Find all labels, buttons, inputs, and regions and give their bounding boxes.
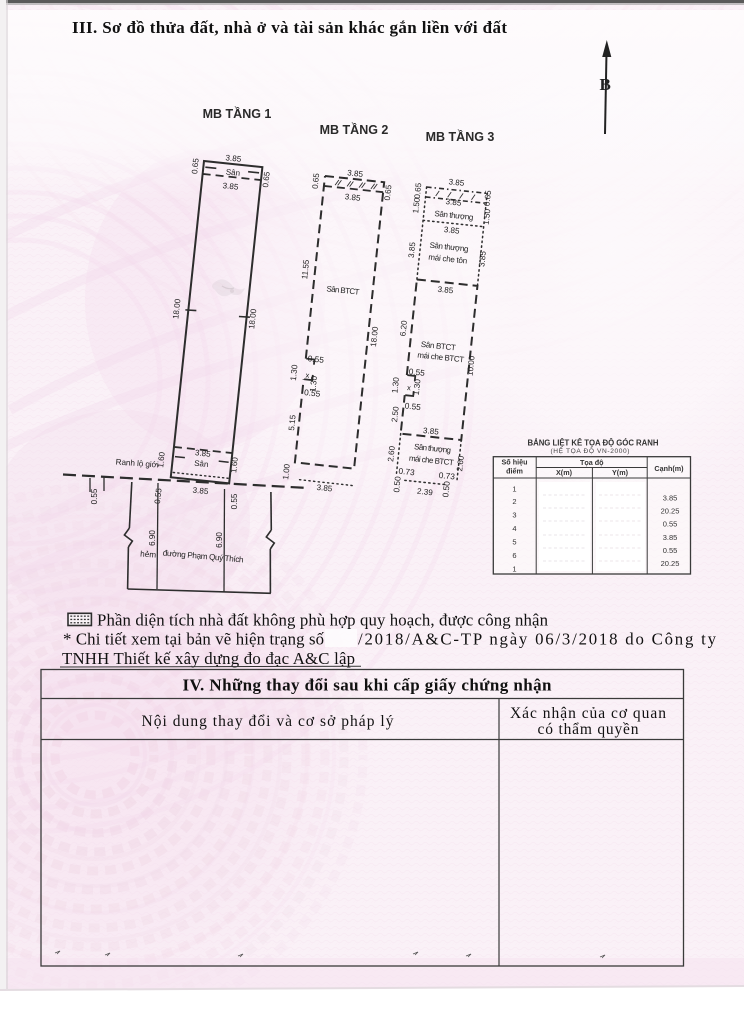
svg-text:III. Sơ đồ thửa đất, nhà ở và: III. Sơ đồ thửa đất, nhà ở và tài sản kh… (72, 18, 507, 37)
svg-text:1.00: 1.00 (281, 463, 292, 480)
svg-text:0.65: 0.65 (482, 189, 493, 206)
svg-text:1.50: 1.50 (411, 197, 422, 214)
svg-text:Phần diện tích nhà đất không p: Phần diện tích nhà đất không phù hợp quy… (97, 611, 549, 630)
svg-text:6.20: 6.20 (398, 320, 409, 337)
svg-text:20.25: 20.25 (661, 559, 680, 568)
svg-text:3.85: 3.85 (316, 483, 333, 494)
svg-text:3.85: 3.85 (407, 241, 418, 258)
svg-text:3.85: 3.85 (195, 448, 212, 459)
svg-text:3.85: 3.85 (448, 177, 465, 188)
svg-text:* Chi tiết xem tại bản vẽ hiện: * Chi tiết xem tại bản vẽ hiện trạng số (63, 630, 325, 649)
svg-text:MB TẦNG 1: MB TẦNG 1 (203, 106, 272, 121)
svg-text:3.85: 3.85 (192, 486, 209, 497)
svg-text:0.65: 0.65 (413, 182, 424, 199)
svg-text:Cạnh(m): Cạnh(m) (654, 464, 684, 473)
svg-text:Tọa độ: Tọa độ (580, 458, 604, 467)
svg-text:4: 4 (512, 524, 516, 533)
svg-text:2.60: 2.60 (386, 445, 397, 462)
svg-text:0.55: 0.55 (663, 520, 678, 529)
svg-text:0.73: 0.73 (398, 466, 415, 478)
svg-text:1.30: 1.30 (411, 378, 423, 395)
svg-text:BẢNG LIỆT KÊ TỌA ĐỘ GÓC RANH: BẢNG LIỆT KÊ TỌA ĐỘ GÓC RANH (528, 439, 659, 448)
svg-text:Sân: Sân (194, 459, 209, 469)
svg-text:20.25: 20.25 (661, 507, 680, 516)
svg-text:3.85: 3.85 (347, 168, 364, 179)
svg-text:1.60: 1.60 (229, 456, 240, 473)
svg-text:0.65: 0.65 (383, 184, 394, 201)
svg-text:0.65: 0.65 (311, 172, 322, 189)
svg-text:TNHH Thiết kế xây dựng đo đạc: TNHH Thiết kế xây dựng đo đạc A&C lập (62, 649, 355, 668)
svg-text:MB TẦNG 3: MB TẦNG 3 (426, 129, 495, 144)
svg-text:0.55: 0.55 (307, 353, 324, 365)
svg-text:MB TẦNG 2: MB TẦNG 2 (320, 122, 389, 137)
svg-text:0.55: 0.55 (230, 493, 239, 509)
svg-text:/2018/A&C-TP ngày 06/3/2018 do: /2018/A&C-TP ngày 06/3/2018 do Công ty (358, 630, 717, 649)
svg-text:IV. Những thay đổi sau khi cấp: IV. Những thay đổi sau khi cấp giấy chứn… (183, 676, 553, 695)
svg-text:6: 6 (512, 551, 516, 560)
svg-text:0.73: 0.73 (438, 470, 455, 482)
svg-text:1.30: 1.30 (288, 364, 300, 381)
svg-text:hẻm: hẻm (140, 549, 157, 559)
svg-text:3.85: 3.85 (344, 192, 361, 203)
svg-text:Nội dung thay đổi và cơ sở phá: Nội dung thay đổi và cơ sở pháp lý (142, 713, 394, 730)
svg-text:0.65: 0.65 (261, 171, 272, 188)
svg-text:3.85: 3.85 (222, 181, 239, 192)
svg-text:0.55: 0.55 (304, 387, 321, 399)
svg-text:2: 2 (512, 497, 516, 506)
svg-text:1: 1 (512, 485, 516, 494)
svg-text:0.55: 0.55 (90, 488, 99, 504)
svg-text:0.65: 0.65 (190, 157, 201, 174)
svg-text:2.39: 2.39 (417, 487, 434, 498)
svg-text:0.50: 0.50 (440, 480, 452, 497)
svg-text:(HỆ TỌA ĐỘ VN-2000): (HỆ TỌA ĐỘ VN-2000) (551, 446, 630, 455)
svg-text:0.55: 0.55 (404, 400, 421, 412)
svg-text:Xác nhận của cơ quan: Xác nhận của cơ quan (510, 705, 666, 722)
svg-text:3.85: 3.85 (437, 285, 454, 296)
svg-text:0.50: 0.50 (391, 475, 403, 492)
svg-text:2.50: 2.50 (390, 406, 401, 423)
svg-text:Số hiệu: Số hiệu (502, 458, 528, 467)
svg-text:1.50: 1.50 (482, 208, 493, 225)
svg-text:6.90: 6.90 (148, 530, 157, 546)
svg-text:X(m): X(m) (556, 468, 573, 477)
svg-text:3.85: 3.85 (663, 494, 678, 503)
svg-text:5: 5 (512, 538, 516, 547)
svg-text:1.30: 1.30 (389, 376, 401, 393)
svg-text:3: 3 (512, 511, 516, 520)
svg-text:B: B (600, 75, 611, 94)
svg-text:3.85: 3.85 (445, 197, 462, 208)
svg-text:0.55: 0.55 (663, 546, 678, 555)
svg-text:3.85: 3.85 (423, 426, 440, 437)
svg-text:2.60: 2.60 (455, 455, 466, 472)
svg-text:5.15: 5.15 (287, 414, 298, 431)
svg-text:3.85: 3.85 (225, 153, 242, 164)
svg-text:3.85: 3.85 (443, 225, 460, 236)
svg-text:điểm: điểm (506, 467, 523, 476)
svg-text:1: 1 (512, 565, 516, 574)
svg-text:0.55: 0.55 (408, 366, 425, 378)
svg-text:Y(m): Y(m) (612, 468, 629, 477)
svg-text:3.85: 3.85 (477, 250, 488, 267)
svg-text:3.85: 3.85 (663, 533, 678, 542)
svg-text:6.90: 6.90 (215, 532, 224, 548)
svg-text:có thẩm quyền: có thẩm quyền (538, 721, 639, 738)
